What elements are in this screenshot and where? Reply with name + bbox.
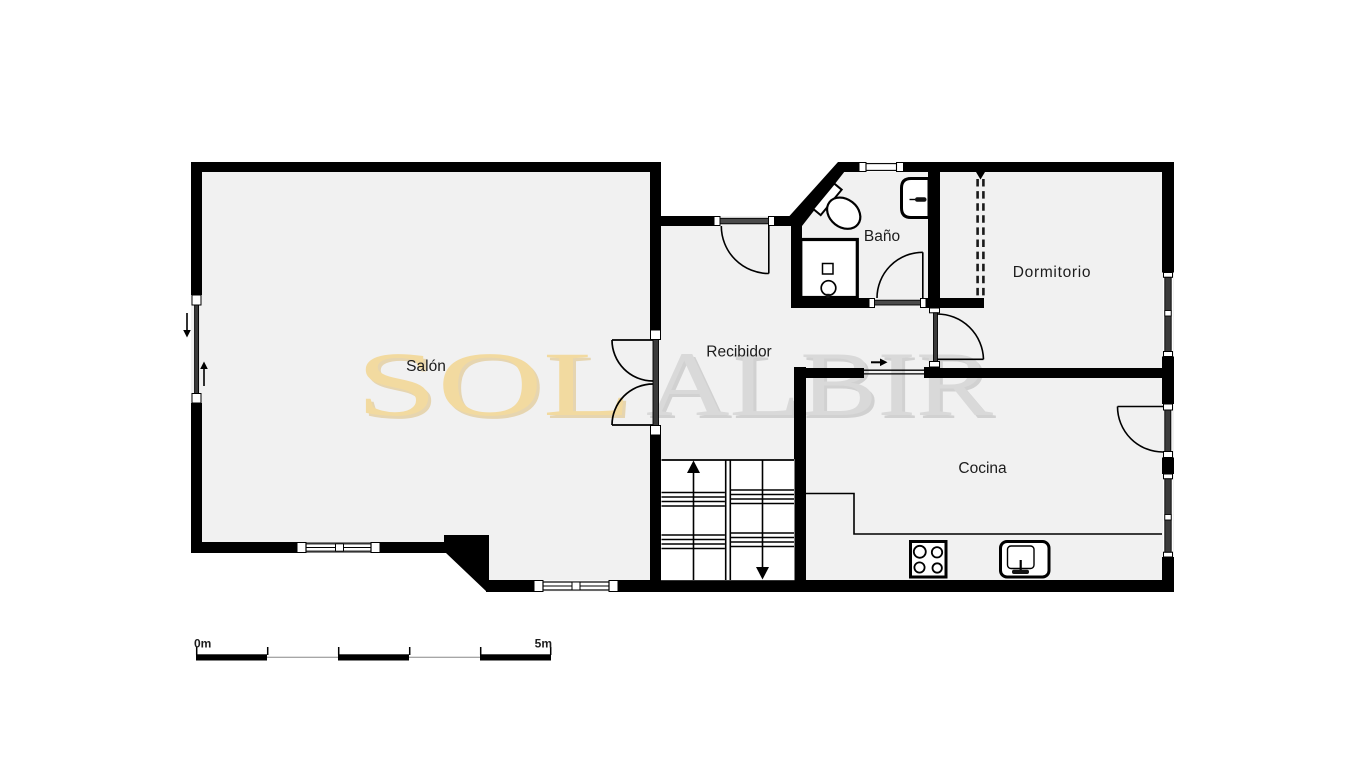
svg-text:5m: 5m [535, 637, 552, 651]
svg-text:Salón: Salón [406, 358, 446, 375]
svg-text:Baño: Baño [864, 228, 900, 245]
svg-text:0m: 0m [194, 637, 211, 651]
svg-text:Cocina: Cocina [958, 460, 1007, 477]
svg-text:Dormitorio: Dormitorio [1013, 264, 1091, 281]
svg-text:Recibidor: Recibidor [706, 344, 771, 361]
svg-text:SOL: SOL [356, 333, 632, 435]
svg-text:ALBIR: ALBIR [646, 333, 994, 435]
